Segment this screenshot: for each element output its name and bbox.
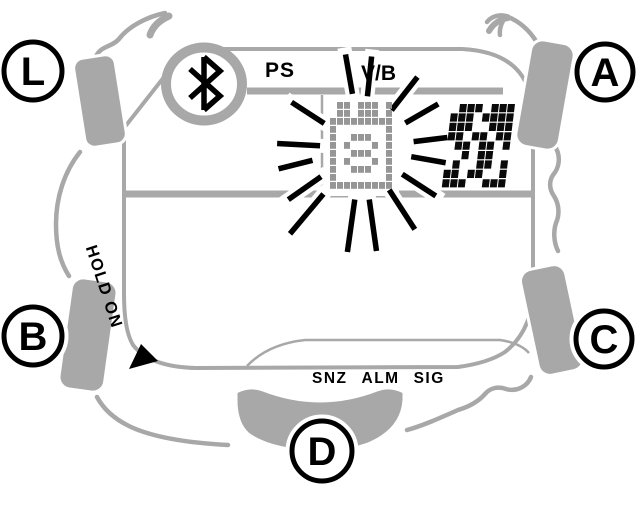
- callout-c-label: C: [590, 318, 619, 362]
- snooze-indicator: SNZ: [312, 370, 348, 388]
- case-left-edge: [56, 152, 80, 276]
- top-right-button[interactable]: [514, 38, 576, 152]
- signal-indicator: SIG: [414, 370, 445, 388]
- callout-a: A: [573, 40, 637, 104]
- callout-d: D: [288, 417, 356, 485]
- bottom-indicator-row: SNZ ALM SIG: [312, 370, 445, 388]
- case-right-edge: [550, 148, 559, 251]
- top-left-button[interactable]: [72, 53, 128, 148]
- bluetooth-indicator: [166, 48, 242, 121]
- case-bottom-left-edge: [97, 397, 228, 445]
- alarm-indicator: ALM: [362, 370, 400, 388]
- callout-c: C: [572, 307, 636, 371]
- callout-b: B: [0, 303, 66, 369]
- vibration-indicator: V/B: [361, 62, 396, 86]
- callout-light: L: [0, 38, 66, 104]
- callout-a-label: A: [591, 51, 620, 95]
- power-save-indicator: PS: [265, 59, 295, 83]
- case-top-left-lug-inner: [150, 16, 169, 35]
- watch-diagram: L A B C D: [0, 0, 640, 509]
- callout-light-label: L: [21, 50, 45, 94]
- callout-b-label: B: [19, 315, 48, 359]
- callout-d-label: D: [308, 430, 337, 474]
